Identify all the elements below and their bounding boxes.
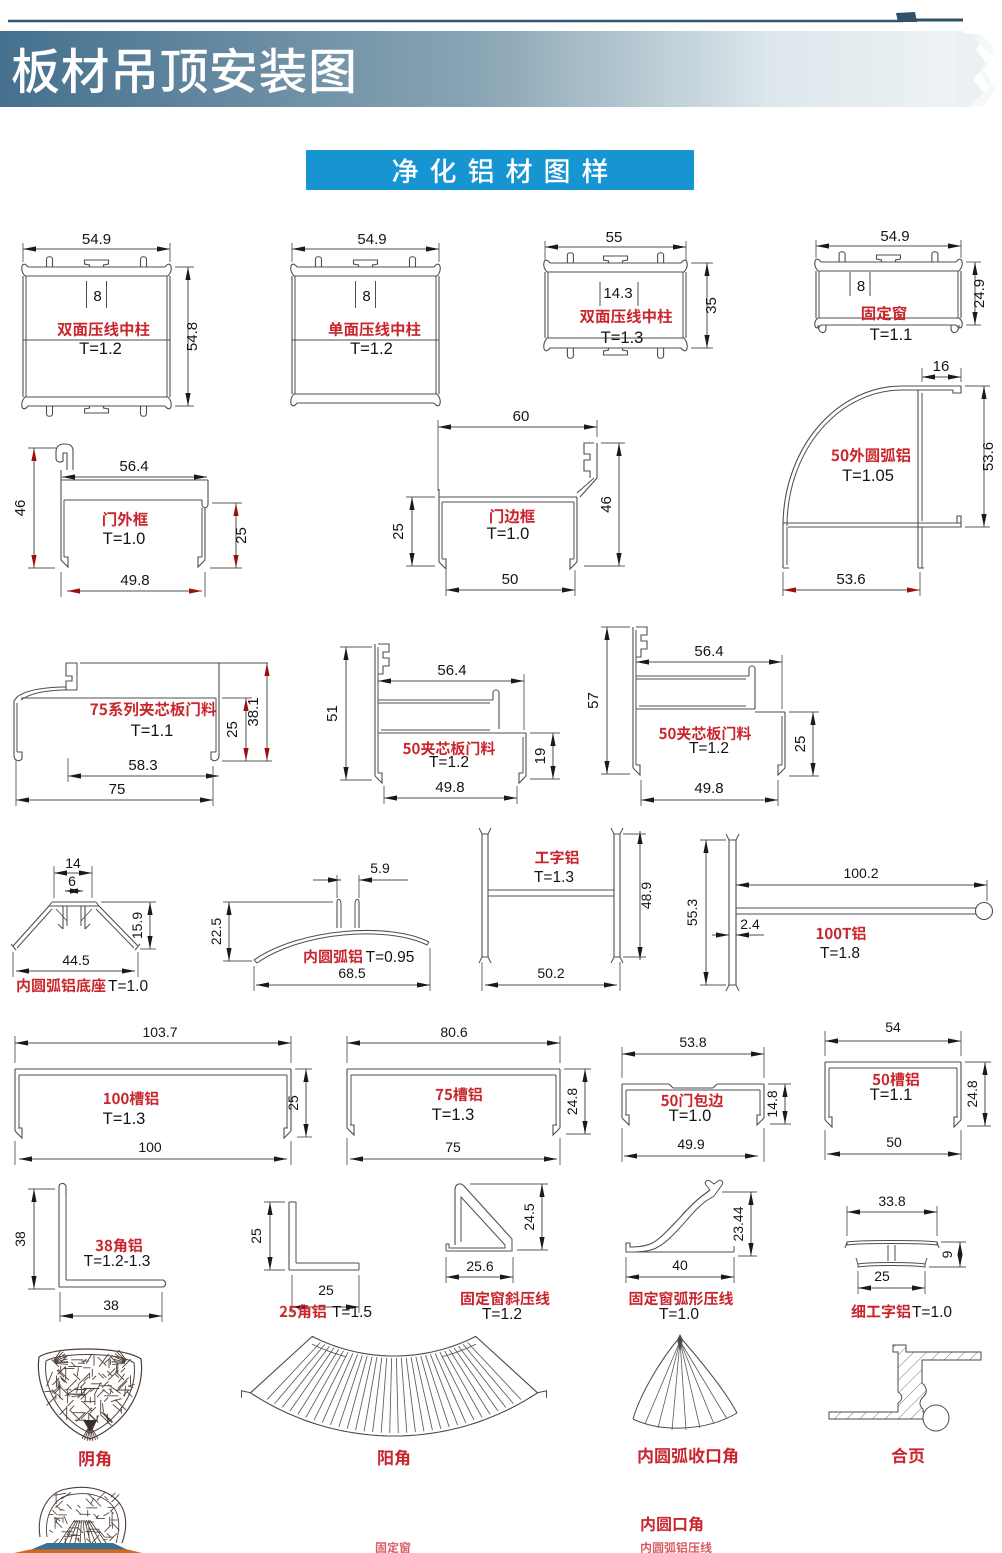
svg-text:T=1.1: T=1.1: [870, 326, 913, 344]
svg-text:5.9: 5.9: [370, 860, 390, 876]
svg-text:50: 50: [502, 571, 519, 588]
svg-text:25: 25: [390, 523, 407, 540]
svg-text:25: 25: [224, 721, 241, 738]
svg-text:T=1.2: T=1.2: [482, 1306, 522, 1323]
svg-text:23.44: 23.44: [730, 1206, 746, 1241]
svg-text:54.9: 54.9: [357, 231, 386, 248]
svg-text:56.4: 56.4: [119, 458, 148, 475]
svg-text:38.1: 38.1: [245, 697, 262, 726]
svg-text:60: 60: [513, 408, 530, 425]
svg-text:58.3: 58.3: [128, 757, 157, 774]
svg-text:2.4: 2.4: [740, 916, 760, 932]
svg-text:68.5: 68.5: [338, 965, 365, 981]
svg-text:T=1.2: T=1.2: [429, 754, 469, 771]
svg-text:54: 54: [885, 1019, 901, 1035]
svg-text:53.6: 53.6: [980, 442, 997, 471]
svg-text:T=1.0: T=1.0: [912, 1304, 952, 1321]
svg-text:33.8: 33.8: [878, 1193, 905, 1209]
svg-text:49.8: 49.8: [435, 779, 464, 796]
svg-text:8: 8: [93, 288, 101, 305]
svg-text:8: 8: [362, 288, 370, 305]
svg-text:54.9: 54.9: [880, 228, 909, 245]
svg-text:56.4: 56.4: [694, 643, 723, 660]
svg-text:25: 25: [285, 1095, 301, 1111]
svg-text:19: 19: [532, 748, 549, 765]
svg-text:53.8: 53.8: [679, 1034, 706, 1050]
svg-text:T=0.95: T=0.95: [366, 949, 415, 966]
svg-text:53.6: 53.6: [836, 571, 865, 588]
svg-text:T=1.0: T=1.0: [669, 1107, 712, 1125]
svg-text:T=1.0: T=1.0: [487, 525, 530, 543]
svg-text:24.9: 24.9: [971, 279, 988, 308]
svg-text:46: 46: [598, 496, 615, 513]
svg-text:100: 100: [138, 1139, 162, 1155]
svg-text:T=1.5: T=1.5: [332, 1304, 372, 1321]
svg-text:24.5: 24.5: [521, 1203, 537, 1230]
svg-text:15.9: 15.9: [129, 912, 145, 939]
svg-text:25.6: 25.6: [466, 1258, 493, 1274]
svg-text:51: 51: [324, 705, 341, 722]
svg-text:80.6: 80.6: [440, 1024, 467, 1040]
svg-text:55: 55: [606, 229, 623, 246]
svg-text:25: 25: [874, 1268, 890, 1284]
svg-text:24.8: 24.8: [564, 1088, 580, 1115]
svg-text:38: 38: [12, 1231, 28, 1247]
svg-text:38: 38: [103, 1297, 119, 1313]
svg-text:49.8: 49.8: [694, 780, 723, 797]
svg-text:T=1.1: T=1.1: [870, 1086, 913, 1104]
svg-text:48.9: 48.9: [638, 882, 654, 909]
svg-text:T=1.2: T=1.2: [350, 340, 393, 358]
svg-text:T=1.1: T=1.1: [131, 722, 174, 740]
svg-text:T=1.0: T=1.0: [108, 978, 148, 995]
svg-text:54.9: 54.9: [82, 231, 111, 248]
svg-text:25: 25: [318, 1282, 334, 1298]
svg-text:25: 25: [248, 1228, 264, 1244]
svg-text:T=1.8: T=1.8: [820, 945, 860, 962]
svg-text:44.5: 44.5: [62, 952, 89, 968]
svg-text:T=1.0: T=1.0: [659, 1306, 699, 1323]
svg-text:75: 75: [109, 781, 126, 798]
svg-text:T=1.3: T=1.3: [534, 869, 574, 886]
svg-text:49.8: 49.8: [120, 572, 149, 589]
svg-text:24.8: 24.8: [964, 1080, 980, 1107]
svg-text:T=1.2-1.3: T=1.2-1.3: [84, 1253, 151, 1270]
svg-text:6: 6: [68, 873, 76, 889]
svg-text:25: 25: [233, 527, 250, 544]
svg-text:T=1.0: T=1.0: [103, 530, 146, 548]
svg-text:55.3: 55.3: [684, 899, 700, 926]
svg-text:T=1.3: T=1.3: [601, 329, 644, 347]
svg-text:T=1.2: T=1.2: [689, 740, 729, 757]
svg-text:103.7: 103.7: [142, 1024, 177, 1040]
svg-text:T=1.3: T=1.3: [432, 1106, 475, 1124]
svg-text:56.4: 56.4: [437, 662, 466, 679]
svg-text:54.8: 54.8: [184, 322, 201, 351]
svg-text:50: 50: [886, 1134, 902, 1150]
svg-text:75: 75: [445, 1139, 461, 1155]
svg-text:50.2: 50.2: [537, 965, 564, 981]
svg-text:40: 40: [672, 1257, 688, 1273]
svg-text:T=1.05: T=1.05: [842, 467, 894, 485]
svg-text:16: 16: [933, 358, 950, 375]
svg-text:46: 46: [12, 500, 29, 517]
svg-text:100.2: 100.2: [843, 865, 878, 881]
svg-text:T=1.2: T=1.2: [79, 340, 122, 358]
svg-text:49.9: 49.9: [677, 1136, 704, 1152]
svg-text:57: 57: [585, 692, 602, 709]
svg-text:14.8: 14.8: [764, 1090, 780, 1117]
svg-text:14.3: 14.3: [603, 285, 632, 302]
svg-text:T=1.3: T=1.3: [103, 1110, 146, 1128]
svg-text:35: 35: [703, 297, 720, 314]
svg-text:25: 25: [792, 736, 809, 753]
svg-text:22.5: 22.5: [208, 918, 224, 945]
svg-text:14: 14: [65, 855, 81, 871]
svg-text:8: 8: [857, 278, 865, 295]
svg-text:9: 9: [939, 1250, 955, 1258]
